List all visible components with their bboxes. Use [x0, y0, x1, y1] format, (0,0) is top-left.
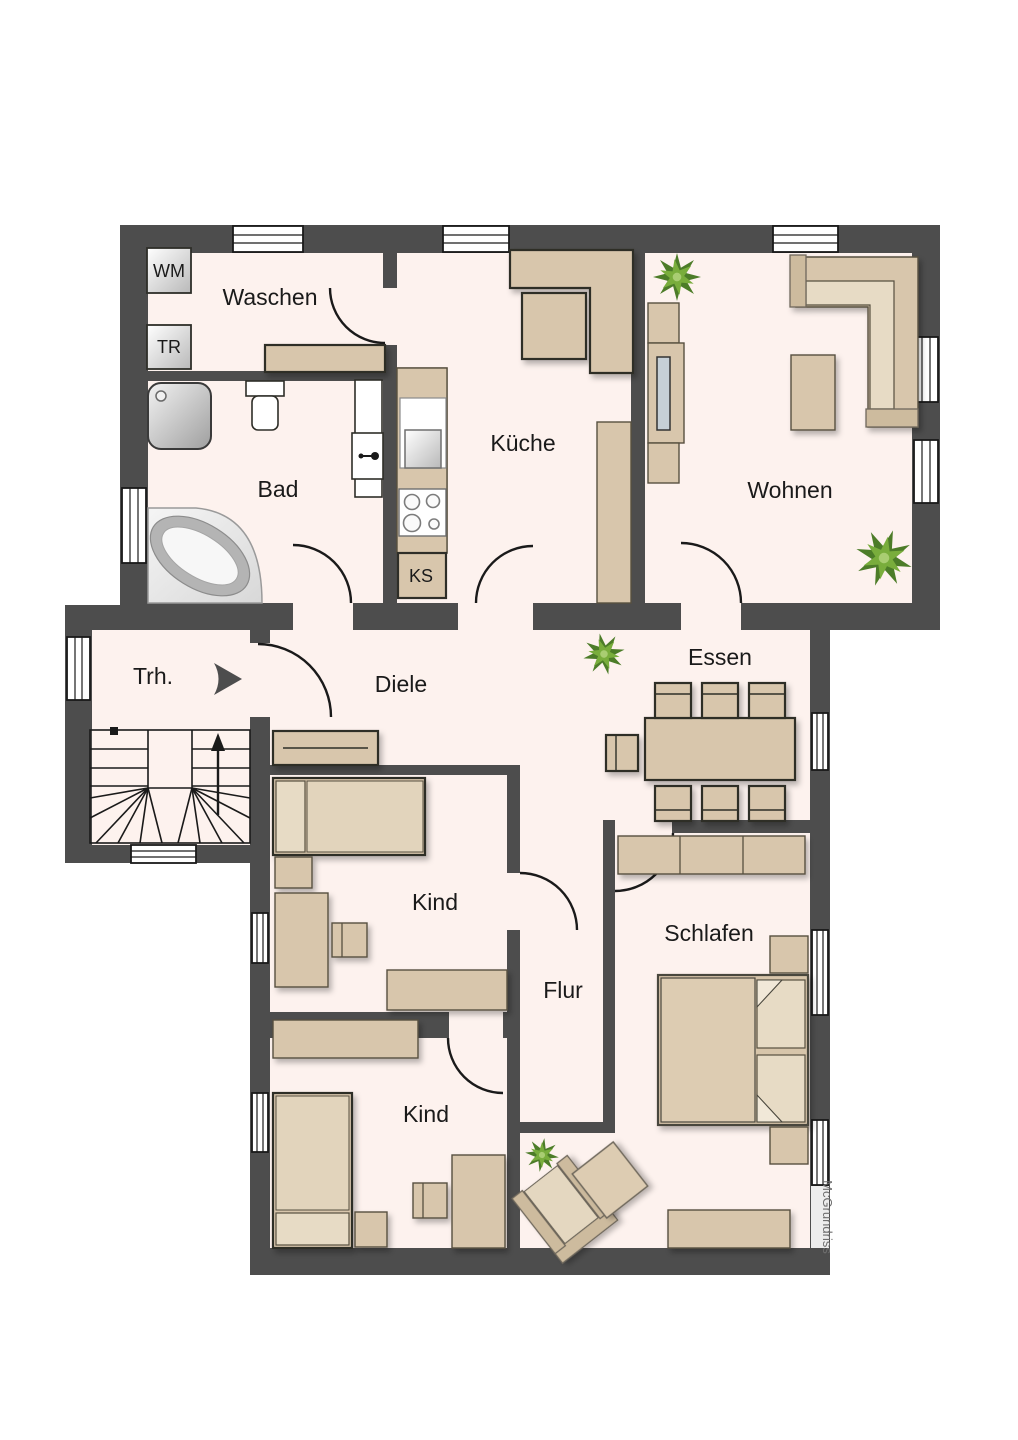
window-trh-bottom	[131, 845, 196, 863]
watermark-text: McGrundriss	[820, 1180, 835, 1254]
window-kind2-left	[252, 1093, 268, 1152]
double-bed	[658, 975, 808, 1125]
dining-chair	[702, 683, 738, 718]
label-trh: Trh.	[133, 663, 173, 689]
dining-chair	[749, 786, 785, 821]
window-essen-right	[812, 713, 828, 770]
wardrobe	[618, 836, 805, 874]
dining-chair	[606, 735, 638, 771]
label-washing-machine: WM	[153, 261, 185, 281]
label-waschen: Waschen	[222, 284, 317, 310]
dining-table	[645, 718, 795, 780]
dining-chair	[749, 683, 785, 718]
label-wohnen: Wohnen	[747, 477, 832, 503]
pillow	[276, 1213, 349, 1245]
kitchen-sink	[400, 398, 446, 468]
desk	[275, 893, 328, 987]
dining-chair	[702, 786, 738, 821]
window-schlafen-right-2	[812, 1120, 828, 1185]
toilet	[246, 381, 284, 430]
kitchen-tall-cabinet	[597, 422, 631, 603]
pillow	[276, 781, 305, 852]
label-schlafen: Schlafen	[664, 920, 754, 946]
dining-chair	[655, 683, 691, 718]
window-kind1-left	[252, 913, 268, 963]
label-kueche: Küche	[490, 430, 555, 456]
label-kind1: Kind	[412, 889, 458, 915]
tv-screen	[657, 357, 670, 430]
desk-chair	[332, 923, 367, 957]
window-schlafen-right-1	[812, 930, 828, 1015]
label-fridge: KS	[409, 566, 433, 586]
stairs-start-marker	[110, 727, 118, 735]
shelf	[273, 1020, 418, 1058]
bathroom-sink	[352, 380, 383, 497]
stove	[399, 489, 446, 536]
window-trh-left	[67, 637, 90, 700]
tv-sideboard	[648, 303, 684, 483]
shelf	[387, 970, 507, 1010]
shower	[148, 383, 211, 449]
nightstand	[770, 1127, 808, 1164]
dining-chair	[655, 786, 691, 821]
window-wohnen-right-2	[914, 440, 938, 503]
label-dryer: TR	[157, 337, 181, 357]
window-kueche-top	[443, 226, 509, 252]
kitchen-table	[522, 293, 586, 359]
shower-drain-icon	[156, 391, 166, 401]
label-flur: Flur	[543, 977, 583, 1003]
label-kind2: Kind	[403, 1101, 449, 1127]
hall-sideboard	[273, 731, 378, 765]
floorplan-drawing: Waschen Bad Küche Wohnen Trh. Diele Esse…	[0, 0, 1018, 1440]
label-bad: Bad	[258, 476, 299, 502]
nightstand	[275, 857, 312, 888]
laundry-counter	[265, 345, 385, 372]
window-waschen-top	[233, 226, 303, 252]
desk	[452, 1155, 505, 1248]
corner-bench	[510, 250, 633, 373]
nightstand	[355, 1212, 387, 1247]
plant-icon	[653, 253, 701, 301]
watermark: McGrundriss	[811, 1180, 835, 1254]
floorplan-page: Waschen Bad Küche Wohnen Trh. Diele Esse…	[0, 0, 1018, 1440]
label-essen: Essen	[688, 644, 752, 670]
single-bed	[273, 1093, 352, 1248]
nightstand	[770, 936, 808, 973]
window-bad-left	[122, 488, 146, 563]
desk-chair	[413, 1183, 447, 1218]
single-bed	[273, 778, 425, 855]
coffee-table	[791, 355, 835, 430]
bedroom-bench	[668, 1210, 790, 1248]
window-wohnen-top	[773, 226, 838, 252]
label-diele: Diele	[375, 671, 427, 697]
